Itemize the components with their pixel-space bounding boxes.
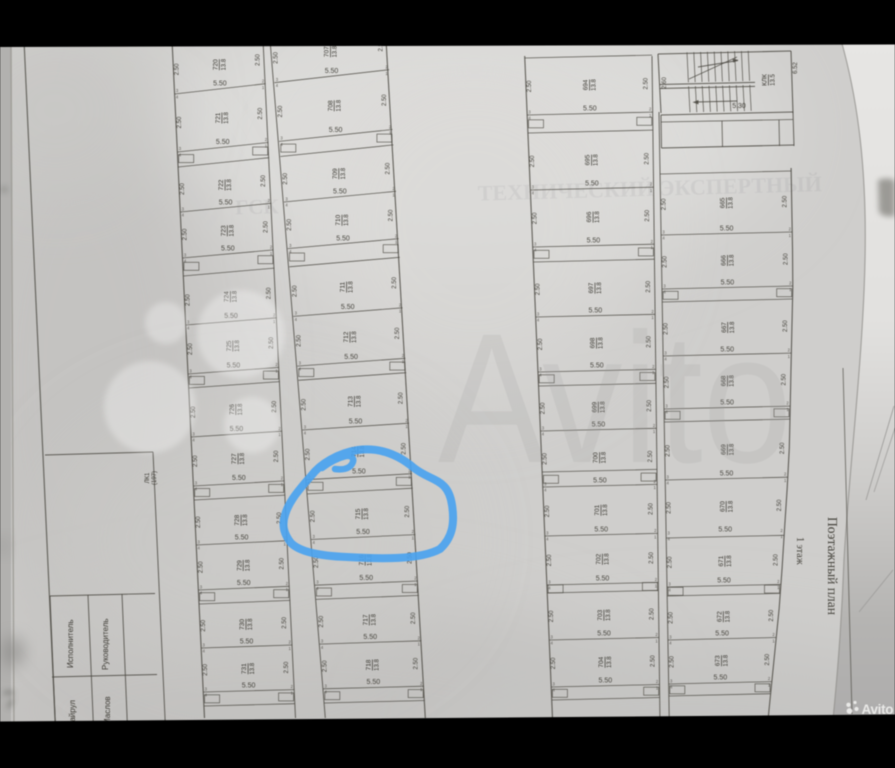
svg-text:Avito: Avito [438, 296, 792, 502]
svg-text:2.50: 2.50 [282, 616, 288, 628]
svg-text:5.50: 5.50 [587, 237, 601, 244]
svg-text:2.50: 2.50 [284, 661, 290, 673]
svg-text:13.8: 13.8 [341, 167, 347, 179]
svg-text:2.50: 2.50 [388, 209, 394, 221]
svg-text:5.50: 5.50 [329, 127, 343, 134]
svg-text:722: 722 [218, 179, 225, 190]
svg-text:5.50: 5.50 [721, 279, 735, 286]
svg-text:728: 728 [234, 514, 241, 525]
svg-text:2.50: 2.50 [322, 660, 328, 672]
svg-text:13.8: 13.8 [227, 179, 233, 191]
svg-text:5.50: 5.50 [366, 679, 380, 686]
svg-text:13.8: 13.8 [352, 331, 358, 343]
svg-text:2.50: 2.50 [663, 255, 669, 267]
svg-text:5.50: 5.50 [359, 575, 373, 582]
svg-text:2.50: 2.50 [545, 505, 551, 517]
svg-text:713: 713 [348, 396, 355, 407]
svg-text:2.50: 2.50 [668, 556, 674, 568]
svg-text:13.8: 13.8 [224, 112, 230, 124]
svg-text:2.50: 2.50 [773, 554, 779, 566]
svg-text:2.50: 2.50 [310, 510, 316, 522]
svg-text:5.50: 5.50 [333, 188, 347, 195]
svg-text:730: 730 [239, 619, 246, 630]
svg-text:2.50: 2.50 [650, 608, 656, 620]
svg-text:2.50: 2.50 [278, 105, 284, 117]
svg-text:2.50: 2.50 [274, 450, 280, 462]
svg-text:13.8: 13.8 [606, 609, 612, 621]
svg-text:671: 671 [718, 555, 725, 566]
svg-text:2.50: 2.50 [399, 392, 405, 404]
svg-text:2.50: 2.50 [201, 619, 207, 631]
svg-text:704: 704 [598, 656, 605, 667]
svg-text:13.8: 13.8 [221, 58, 227, 70]
svg-text:КЛК: КЛК [762, 74, 769, 86]
svg-text:13.8: 13.8 [375, 659, 381, 671]
svg-text:5.50: 5.50 [216, 139, 230, 146]
svg-text:2.50: 2.50 [769, 609, 775, 621]
svg-text:703: 703 [597, 609, 604, 620]
svg-text:13.8: 13.8 [357, 395, 363, 407]
svg-text:2.50: 2.50 [174, 63, 180, 75]
svg-text:729: 729 [236, 560, 243, 571]
svg-text:2.50: 2.50 [646, 280, 652, 292]
svg-text:695: 695 [585, 154, 592, 165]
svg-text:2.50: 2.50 [765, 653, 771, 665]
svg-text:5.50: 5.50 [720, 225, 734, 232]
svg-text:13.8: 13.8 [729, 197, 735, 209]
svg-text:(197): (197) [152, 471, 158, 485]
svg-text:2.50: 2.50 [305, 448, 311, 460]
svg-text:697: 697 [588, 282, 595, 293]
svg-text:13.8: 13.8 [364, 508, 370, 520]
svg-text:13.8: 13.8 [592, 79, 598, 91]
svg-text:709: 709 [332, 168, 339, 179]
svg-text:13.8: 13.8 [245, 559, 251, 571]
svg-text:ГСК: ГСК [235, 194, 280, 219]
svg-text:2.50: 2.50 [258, 107, 264, 119]
svg-text:2.50: 2.50 [395, 327, 401, 339]
svg-text:696: 696 [586, 211, 593, 222]
svg-text:2.50: 2.50 [386, 162, 392, 174]
svg-text:2.50: 2.50 [669, 611, 675, 623]
svg-text:13.8: 13.8 [243, 514, 249, 526]
svg-text:2.50: 2.50 [188, 343, 194, 355]
svg-text:5.50: 5.50 [352, 468, 366, 475]
svg-text:5.50: 5.50 [717, 578, 731, 585]
svg-text:2.50: 2.50 [319, 615, 325, 627]
svg-text:2.50: 2.50 [649, 552, 655, 564]
svg-text:2.50: 2.50 [263, 221, 269, 233]
svg-text:2.50: 2.50 [662, 198, 668, 210]
svg-text:5.50: 5.50 [221, 246, 235, 253]
svg-text:2.50: 2.50 [667, 501, 673, 513]
svg-text:5.50: 5.50 [349, 418, 363, 425]
svg-text:1 этаж: 1 этаж [794, 537, 805, 565]
svg-text:5.50: 5.50 [336, 235, 350, 242]
svg-text:2.50: 2.50 [547, 554, 553, 566]
svg-text:2.50: 2.50 [301, 398, 307, 410]
svg-text:13.8: 13.8 [725, 610, 731, 622]
svg-text:13.8: 13.8 [724, 654, 730, 666]
svg-text:666: 666 [721, 255, 728, 266]
svg-text:13.8: 13.8 [344, 214, 350, 226]
svg-text:2.50: 2.50 [530, 155, 536, 167]
svg-text:712: 712 [343, 331, 350, 342]
svg-text:13.8: 13.8 [229, 224, 235, 236]
svg-text:5.50: 5.50 [713, 675, 727, 682]
svg-text:2.50: 2.50 [527, 80, 533, 92]
svg-text:13.8: 13.8 [349, 281, 355, 293]
svg-text:2.60: 2.60 [662, 77, 668, 89]
svg-text:670: 670 [719, 501, 726, 512]
svg-text:13.8: 13.8 [371, 613, 377, 625]
svg-text:5.50: 5.50 [718, 526, 732, 533]
svg-text:731: 731 [241, 663, 248, 674]
svg-text:711: 711 [340, 282, 347, 293]
svg-text:2.50: 2.50 [198, 561, 204, 573]
svg-text:2.50: 2.50 [193, 455, 199, 467]
svg-text:2.50: 2.50 [255, 54, 261, 66]
svg-text:2.50: 2.50 [287, 218, 293, 230]
svg-text:13.8: 13.8 [250, 662, 256, 674]
svg-text:2.50: 2.50 [382, 94, 388, 106]
svg-text:2.50: 2.50 [536, 283, 542, 295]
svg-text:2.50: 2.50 [182, 228, 188, 240]
svg-text:727: 727 [231, 453, 238, 464]
svg-text:5.50: 5.50 [240, 638, 254, 645]
svg-text:5.30: 5.30 [732, 103, 746, 110]
svg-text:710: 710 [335, 214, 342, 225]
svg-text:2.50: 2.50 [405, 505, 411, 517]
svg-text:5.50: 5.50 [594, 527, 608, 534]
svg-text:723: 723 [220, 225, 227, 236]
svg-text:2.50: 2.50 [283, 172, 289, 184]
svg-text:13.8: 13.8 [240, 452, 246, 464]
svg-text:Исполнитель: Исполнитель [66, 619, 75, 668]
svg-text:5.50: 5.50 [341, 304, 355, 311]
svg-text:2.50: 2.50 [649, 503, 655, 515]
svg-text:2.50: 2.50 [180, 183, 186, 195]
svg-text:5.50: 5.50 [585, 180, 599, 187]
svg-text:2.50: 2.50 [273, 51, 279, 63]
svg-text:5.50: 5.50 [715, 631, 729, 638]
svg-text:5.50: 5.50 [363, 634, 377, 641]
svg-text:Руководитель: Руководитель [101, 618, 110, 670]
svg-text:2.50: 2.50 [644, 152, 650, 164]
svg-text:2.50: 2.50 [261, 175, 267, 187]
svg-text:2.50: 2.50 [279, 557, 285, 569]
svg-text:2.50: 2.50 [784, 253, 790, 265]
svg-text:718: 718 [366, 659, 373, 670]
svg-text:13.8: 13.8 [605, 553, 611, 565]
svg-text:13.8: 13.8 [595, 211, 601, 223]
svg-text:2.50: 2.50 [549, 610, 555, 622]
svg-text:2.50: 2.50 [783, 195, 789, 207]
svg-text:5.50: 5.50 [597, 631, 611, 638]
svg-text:2.50: 2.50 [401, 442, 407, 454]
svg-text:13.8: 13.8 [594, 154, 600, 166]
svg-text:6.52: 6.52 [793, 62, 799, 74]
svg-text:13.8: 13.8 [333, 45, 339, 57]
svg-text:5.50: 5.50 [596, 576, 610, 583]
svg-text:5.50: 5.50 [598, 678, 612, 685]
svg-text:13.5: 13.5 [771, 74, 777, 86]
svg-text:ЛК1: ЛК1 [145, 472, 151, 483]
svg-text:2.50: 2.50 [645, 209, 651, 221]
svg-text:720: 720 [212, 59, 219, 70]
svg-text:5.50: 5.50 [232, 475, 246, 482]
svg-text:5.50: 5.50 [242, 683, 256, 690]
svg-text:5.50: 5.50 [583, 105, 597, 112]
svg-text:2.50: 2.50 [643, 77, 649, 89]
svg-text:717: 717 [362, 614, 369, 625]
svg-text:Поэтажный план: Поэтажный план [825, 517, 840, 615]
svg-text:5.50: 5.50 [325, 68, 339, 75]
svg-text:715: 715 [355, 508, 362, 519]
svg-text:13.8: 13.8 [336, 99, 342, 111]
svg-text:5.50: 5.50 [237, 580, 251, 587]
svg-text:2.50: 2.50 [392, 276, 398, 288]
svg-text:672: 672 [716, 611, 723, 622]
svg-text:2.50: 2.50 [669, 655, 675, 667]
svg-text:673: 673 [715, 655, 722, 666]
svg-text:701: 701 [594, 504, 601, 515]
svg-text:5.50: 5.50 [235, 535, 249, 542]
svg-text:2.50: 2.50 [296, 334, 302, 346]
svg-text:2.50: 2.50 [551, 657, 557, 669]
svg-text:665: 665 [720, 197, 727, 208]
svg-text:2.50: 2.50 [533, 212, 539, 224]
svg-text:2.50: 2.50 [267, 287, 273, 299]
svg-text:13.8: 13.8 [727, 555, 733, 567]
svg-text:2.50: 2.50 [414, 657, 420, 669]
svg-text:5.50: 5.50 [356, 529, 370, 536]
svg-text:707: 707 [324, 46, 331, 57]
svg-text:13.8: 13.8 [603, 504, 609, 516]
svg-text:13.8: 13.8 [597, 282, 603, 294]
svg-text:13.8: 13.8 [730, 254, 736, 266]
svg-text:694: 694 [583, 79, 590, 90]
svg-text:2.50: 2.50 [186, 294, 192, 306]
svg-text:721: 721 [215, 112, 222, 123]
svg-text:2.50: 2.50 [203, 663, 209, 675]
svg-text:708: 708 [327, 100, 334, 111]
svg-text:5.50: 5.50 [219, 199, 233, 206]
svg-text:702: 702 [596, 553, 603, 564]
svg-text:13.8: 13.8 [248, 618, 254, 630]
svg-text:2.50: 2.50 [196, 516, 202, 528]
svg-text:13.8: 13.8 [607, 656, 613, 668]
svg-text:2.50: 2.50 [177, 116, 183, 128]
svg-text:2.50: 2.50 [650, 655, 656, 667]
svg-text:2.50: 2.50 [292, 285, 298, 297]
svg-text:5.50: 5.50 [344, 354, 358, 361]
svg-text:5.50: 5.50 [213, 81, 227, 88]
svg-text:2.50: 2.50 [411, 612, 417, 624]
